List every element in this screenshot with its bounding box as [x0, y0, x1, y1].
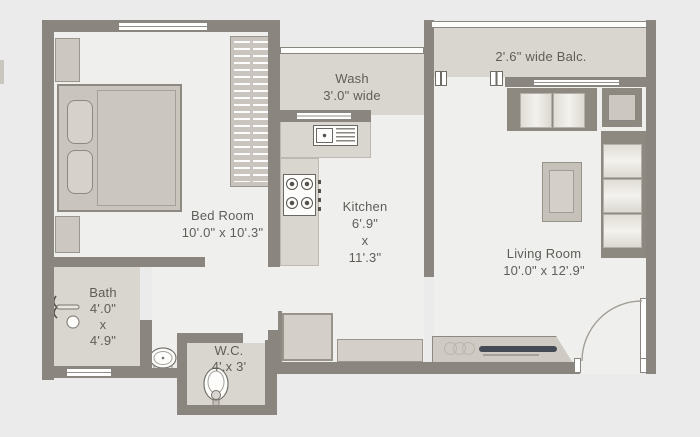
fridge: [282, 313, 333, 361]
sofa-two-seater: [507, 88, 597, 131]
room-name: W.C.: [189, 343, 269, 359]
bedroom-door-opening: [205, 257, 268, 267]
pillow: [67, 100, 93, 144]
living-room-label: Living Room 10'.0" x 12'.9": [463, 245, 625, 279]
decor-rings-icon: [462, 342, 475, 355]
bed-mattress: [97, 90, 176, 206]
door-swing-arc: [581, 300, 643, 362]
room-dims: 10'.0" x 12'.9": [463, 262, 625, 279]
sink-basin: [316, 128, 333, 143]
wardrobe: [230, 36, 272, 187]
burner-icon: [286, 178, 298, 190]
wall: [42, 20, 54, 380]
entrance-opening: [580, 362, 640, 374]
window: [66, 368, 112, 377]
end-table: [602, 88, 642, 127]
room-dims: 10'.0" x 10'.3": [150, 224, 295, 241]
window: [533, 79, 620, 86]
sofa-cushion: [520, 93, 552, 128]
sofa-three-seater: [601, 131, 646, 258]
room-name: Bath: [63, 285, 143, 301]
room-dims: 4'.9": [63, 333, 143, 349]
balcony-door-post: [435, 71, 447, 86]
room-dims: 6'.9": [305, 215, 425, 232]
sofa-cushion: [603, 179, 642, 213]
end-table-top: [608, 94, 636, 121]
tv-icon: [479, 346, 557, 352]
wall: [148, 368, 178, 378]
sofa-cushion: [603, 214, 642, 248]
floor-plan: Bed Room 10'.0" x 10'.3" Wash 3'.0" wide…: [0, 0, 700, 437]
burner-icon: [301, 178, 313, 190]
balcony-railing: [431, 21, 647, 28]
kitchen-sink: [313, 125, 358, 146]
coffee-table-top: [549, 170, 574, 213]
sink-drainboard: [336, 128, 355, 143]
balcony-door-post: [490, 71, 503, 86]
room-name: Wash: [292, 70, 412, 87]
room-dims: 4'.x 3': [189, 359, 269, 375]
wall: [646, 20, 656, 85]
sofa-cushion: [603, 144, 642, 178]
sofa-cushion: [553, 93, 585, 128]
neighbor-edge: [0, 60, 4, 84]
bath-label: Bath 4'.0" x 4'.9": [63, 285, 143, 349]
wardrobe-shelves: [234, 41, 250, 182]
window: [118, 22, 208, 31]
room-dims-sep: x: [63, 317, 143, 333]
wall: [424, 20, 434, 277]
room-dims-sep: x: [305, 232, 425, 249]
coffee-table: [542, 162, 582, 222]
room-name: Living Room: [463, 245, 625, 262]
room-dims: 4'.0": [63, 301, 143, 317]
room-name: Bed Room: [150, 207, 295, 224]
wall: [42, 257, 205, 267]
side-table: [55, 38, 80, 82]
wall: [177, 405, 277, 415]
wardrobe-shelves: [253, 41, 269, 182]
room-name: Kitchen: [305, 198, 425, 215]
window: [296, 112, 352, 120]
wc-label: W.C. 4'.x 3': [189, 343, 269, 375]
stove-knob: [318, 180, 321, 184]
tv-shelf-line: [483, 354, 539, 356]
room-dims: 11'.3": [305, 249, 425, 266]
room-name: 2'.6" wide Balc.: [460, 48, 622, 65]
bed: [57, 84, 182, 212]
stove-knob: [318, 189, 321, 193]
balcony-label: 2'.6" wide Balc.: [460, 48, 622, 65]
wash-railing: [280, 47, 424, 54]
room-dims: 3'.0" wide: [292, 87, 412, 104]
wall: [646, 85, 656, 374]
wall: [268, 362, 580, 374]
cabinet: [337, 339, 423, 362]
side-table: [55, 216, 80, 253]
bedroom-label: Bed Room 10'.0" x 10'.3": [150, 207, 295, 241]
wash-label: Wash 3'.0" wide: [292, 70, 412, 104]
wall: [177, 333, 187, 415]
pillow: [67, 150, 93, 194]
door-jamb: [574, 358, 581, 373]
kitchen-label: Kitchen 6'.9" x 11'.3": [305, 198, 425, 266]
